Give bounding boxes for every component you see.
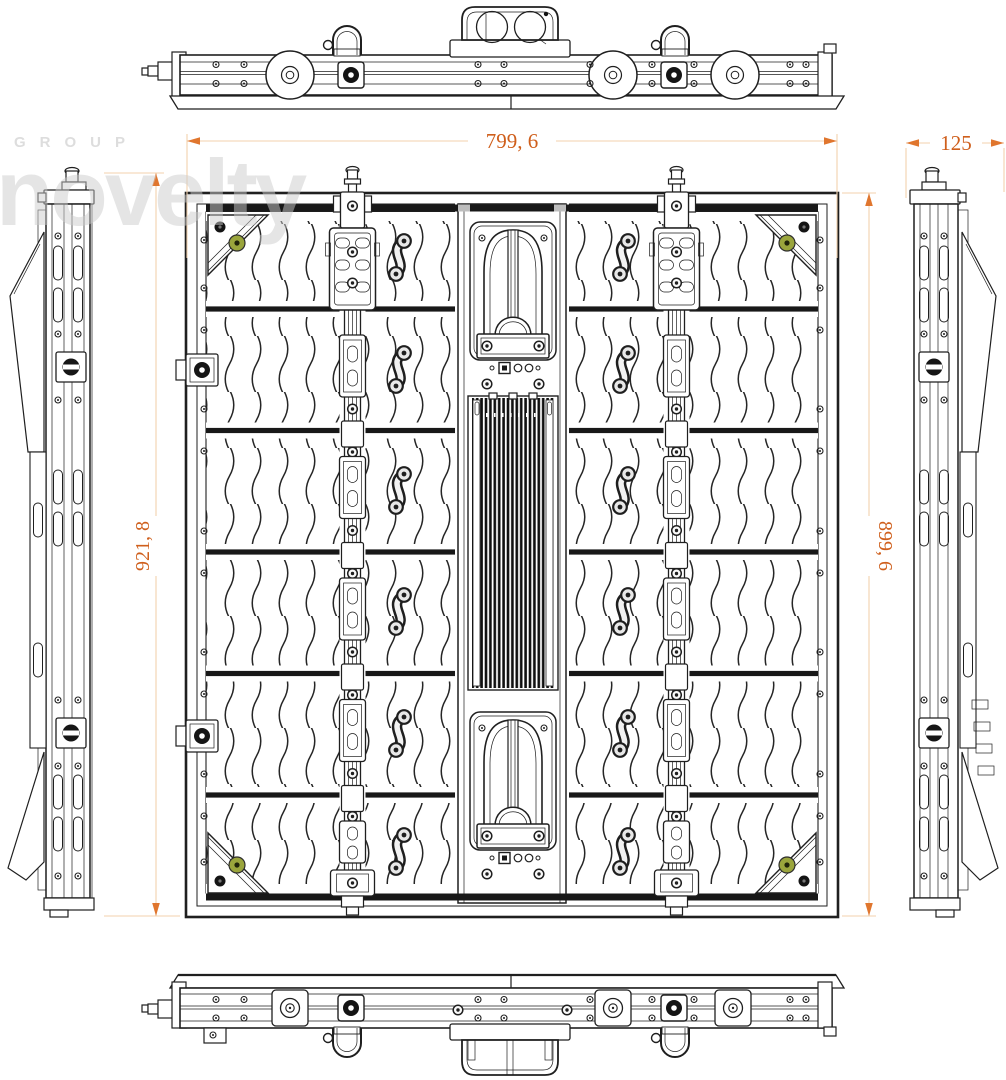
bottom-handle-recess [470,712,556,850]
rear-view [176,167,838,918]
quarter-turn-lock-icon [919,352,949,382]
dim-label-width: 799, 6 [486,129,539,153]
bottom-view [142,975,844,1075]
module-wedge-upper [962,232,996,452]
drawing-canvas: GROUP novelty [0,0,1006,1080]
central-column [455,200,569,903]
dim-label-height-left: 921, 8 [132,521,154,571]
quarter-turn-lock-icon [56,718,86,748]
roller-disc [589,51,637,99]
heatsink [468,393,558,690]
left-side-view [8,168,94,918]
mounting-pad [715,990,751,1026]
mounting-pad [272,990,308,1026]
module-wedge-upper [10,232,44,452]
roller-disc [266,51,314,99]
quarter-turn-lock-icon [56,352,86,382]
top-view [142,7,844,109]
handle-ring [652,41,661,50]
hanging-latch-right [650,167,704,311]
top-handle-recess [470,222,556,360]
handle-ring [652,1034,661,1043]
quarter-turn-lock-icon [919,718,949,748]
dim-depth-right: 125 [906,131,1004,198]
handle-ring [324,41,333,50]
engineering-drawing: 799, 6 921, 8 899, 6 12 [0,0,1006,1080]
quarter-turn-lock-icon [661,62,687,88]
module-wedge-lower [962,752,998,880]
dim-height-left: 921, 8 [104,173,180,916]
quarter-turn-lock-icon [338,62,364,88]
dim-label-depth: 125 [940,131,972,155]
handle-ring [324,1034,333,1043]
side-lock-upper [176,354,218,386]
side-lock-lower [176,720,218,752]
mounting-pad [595,990,631,1026]
roller-disc [711,51,759,99]
right-side-view [910,168,998,918]
connector-hood-top [450,7,570,57]
module-wedge-lower [8,752,44,880]
dim-label-height-right: 899, 6 [874,521,896,571]
quarter-turn-lock-icon [338,995,364,1021]
quarter-turn-lock-icon [661,995,687,1021]
hanging-latch-left [326,167,380,311]
dim-height-right: 899, 6 [842,193,896,916]
